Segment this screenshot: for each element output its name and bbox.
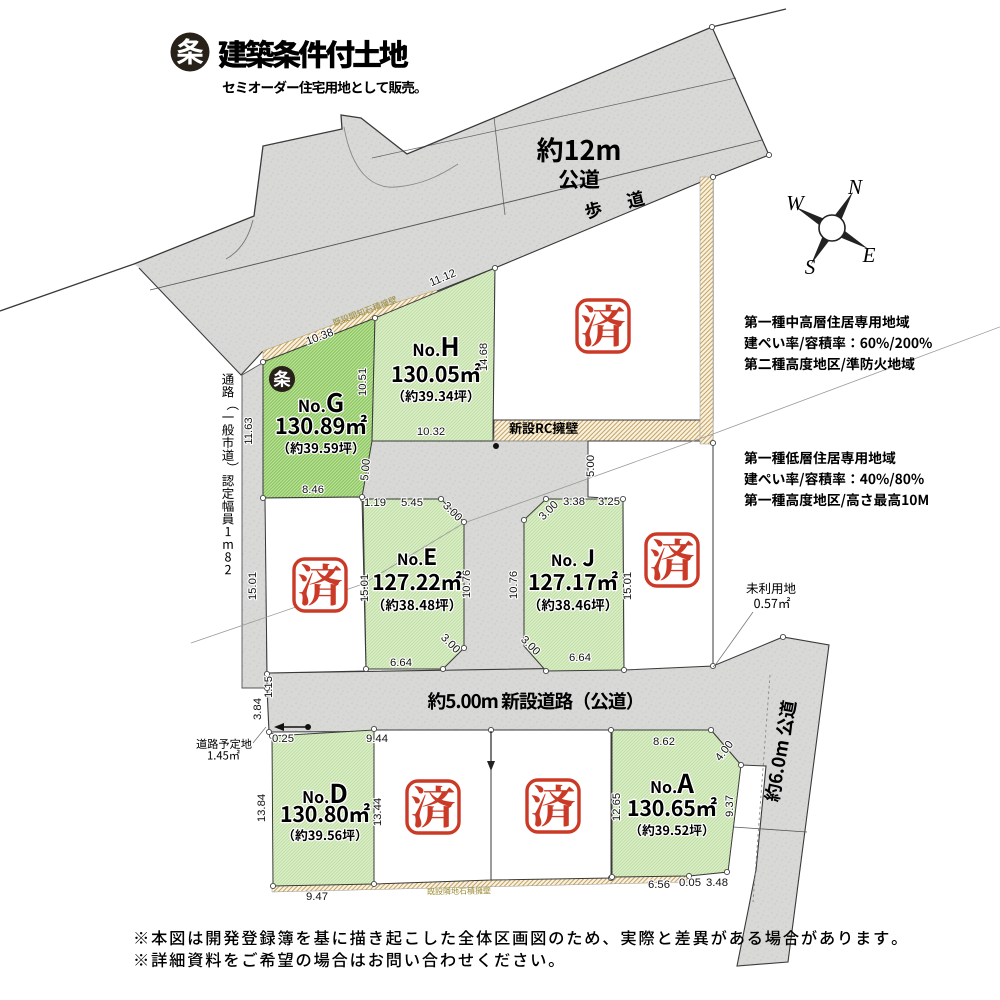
svg-text:5.45: 5.45 bbox=[401, 497, 423, 509]
svg-text:8.62: 8.62 bbox=[653, 736, 675, 748]
svg-text:0.05: 0.05 bbox=[679, 877, 701, 889]
svg-text:11.63: 11.63 bbox=[243, 417, 255, 444]
svg-text:3.25: 3.25 bbox=[598, 496, 620, 508]
svg-text:E: E bbox=[862, 243, 876, 267]
svg-text:10.76: 10.76 bbox=[508, 571, 520, 599]
svg-text:0.25: 0.25 bbox=[272, 733, 294, 745]
svg-text:6.64: 6.64 bbox=[569, 652, 591, 664]
svg-text:13.84: 13.84 bbox=[256, 794, 268, 822]
svg-text:5.00: 5.00 bbox=[359, 458, 373, 481]
svg-text:10.32: 10.32 bbox=[417, 426, 445, 438]
svg-text:3.48: 3.48 bbox=[706, 877, 728, 889]
svg-text:9.37: 9.37 bbox=[724, 795, 736, 817]
svg-text:10.76: 10.76 bbox=[461, 570, 473, 598]
svg-text:9.44: 9.44 bbox=[366, 733, 388, 745]
svg-text:3.38: 3.38 bbox=[563, 496, 585, 508]
svg-text:1.15: 1.15 bbox=[263, 676, 275, 698]
svg-text:13.44: 13.44 bbox=[372, 798, 384, 826]
svg-text:8.46: 8.46 bbox=[302, 484, 324, 496]
svg-text:15.01: 15.01 bbox=[622, 572, 634, 600]
svg-text:N: N bbox=[847, 175, 863, 199]
svg-text:12.65: 12.65 bbox=[611, 793, 623, 821]
svg-text:3.84: 3.84 bbox=[252, 698, 264, 720]
svg-text:6.64: 6.64 bbox=[390, 657, 412, 669]
svg-text:10.51: 10.51 bbox=[357, 368, 369, 396]
svg-text:15.01: 15.01 bbox=[359, 574, 371, 602]
svg-text:1.19: 1.19 bbox=[364, 497, 386, 509]
svg-text:W: W bbox=[786, 191, 806, 215]
svg-text:9.47: 9.47 bbox=[306, 891, 328, 903]
svg-text:6.56: 6.56 bbox=[648, 879, 670, 891]
svg-text:S: S bbox=[805, 255, 816, 279]
svg-text:14.68: 14.68 bbox=[478, 343, 490, 371]
svg-text:15.01: 15.01 bbox=[247, 572, 259, 600]
svg-text:5.00: 5.00 bbox=[585, 455, 597, 477]
